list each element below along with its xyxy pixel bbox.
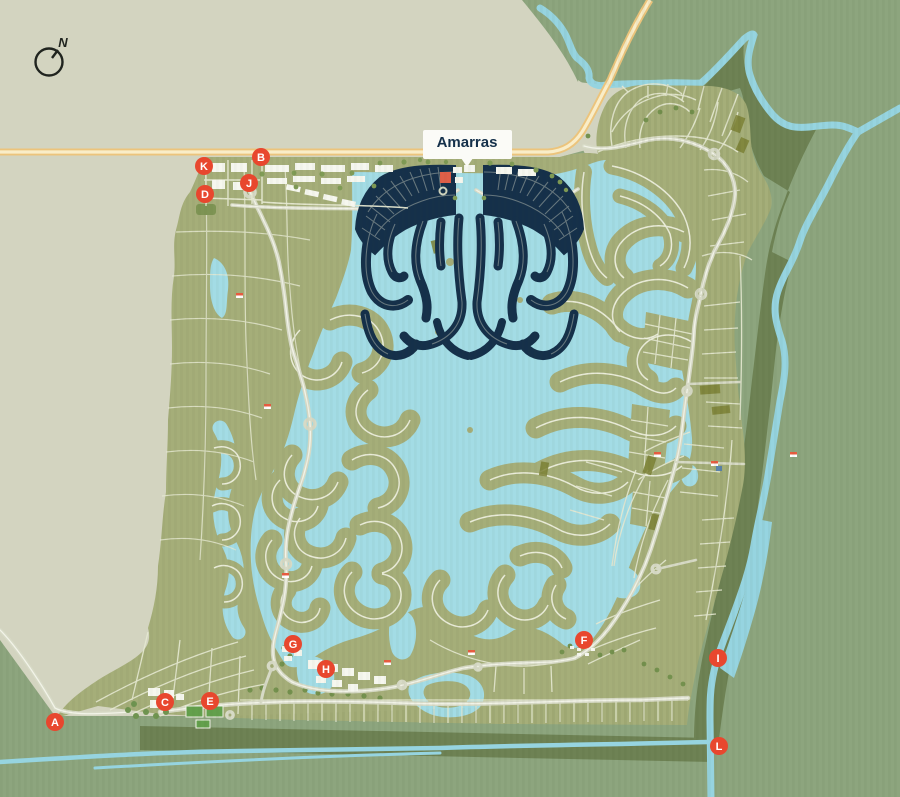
- svg-text:K: K: [200, 161, 208, 173]
- svg-text:I: I: [716, 653, 719, 665]
- svg-text:D: D: [201, 189, 209, 201]
- svg-text:A: A: [51, 717, 59, 729]
- svg-text:F: F: [581, 635, 588, 647]
- svg-text:N: N: [58, 35, 68, 50]
- svg-text:H: H: [322, 664, 330, 676]
- svg-text:C: C: [161, 697, 169, 709]
- svg-text:L: L: [716, 741, 723, 753]
- svg-text:E: E: [206, 696, 213, 708]
- svg-text:Amarras: Amarras: [437, 134, 498, 151]
- svg-text:J: J: [246, 178, 252, 190]
- svg-text:B: B: [257, 152, 265, 164]
- svg-text:G: G: [289, 639, 298, 651]
